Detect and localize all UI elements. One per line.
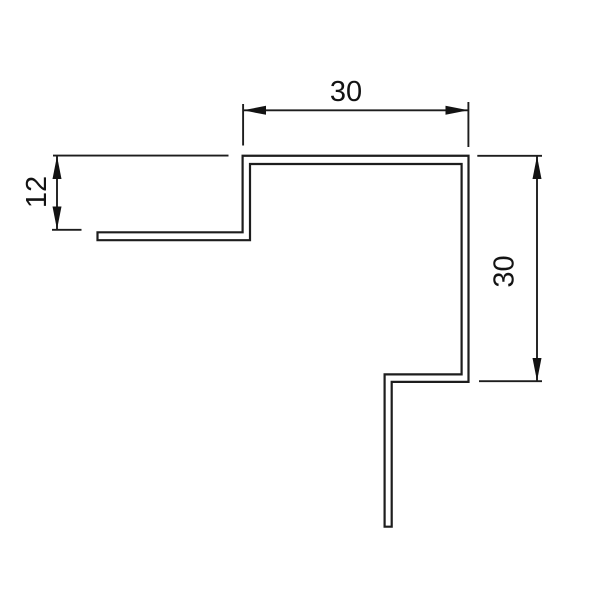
svg-text:30: 30 bbox=[489, 255, 521, 287]
svg-text:30: 30 bbox=[330, 76, 362, 108]
svg-text:12: 12 bbox=[21, 176, 53, 208]
